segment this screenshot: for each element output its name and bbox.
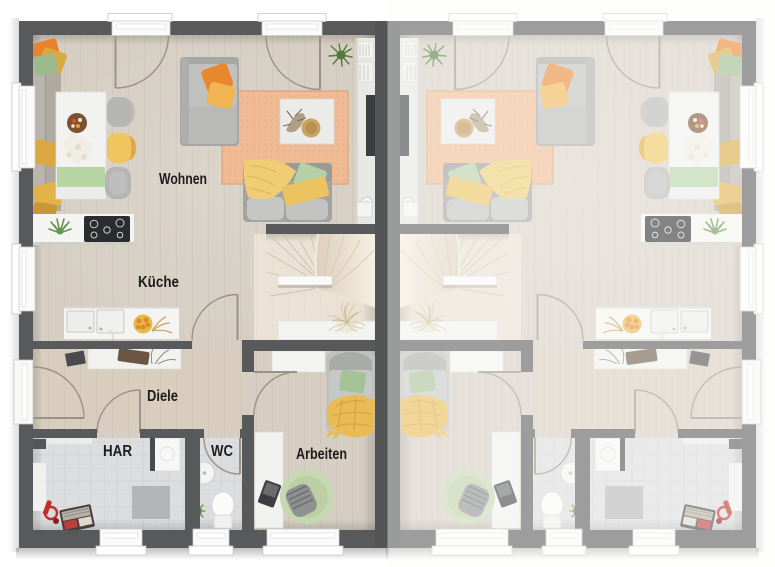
svg-text:HAR: HAR: [103, 443, 132, 460]
svg-text:WC: WC: [211, 443, 233, 460]
svg-text:Diele: Diele: [147, 388, 178, 405]
svg-text:Küche: Küche: [138, 274, 179, 291]
svg-text:Wohnen: Wohnen: [159, 171, 207, 188]
svg-text:Arbeiten: Arbeiten: [296, 446, 347, 463]
